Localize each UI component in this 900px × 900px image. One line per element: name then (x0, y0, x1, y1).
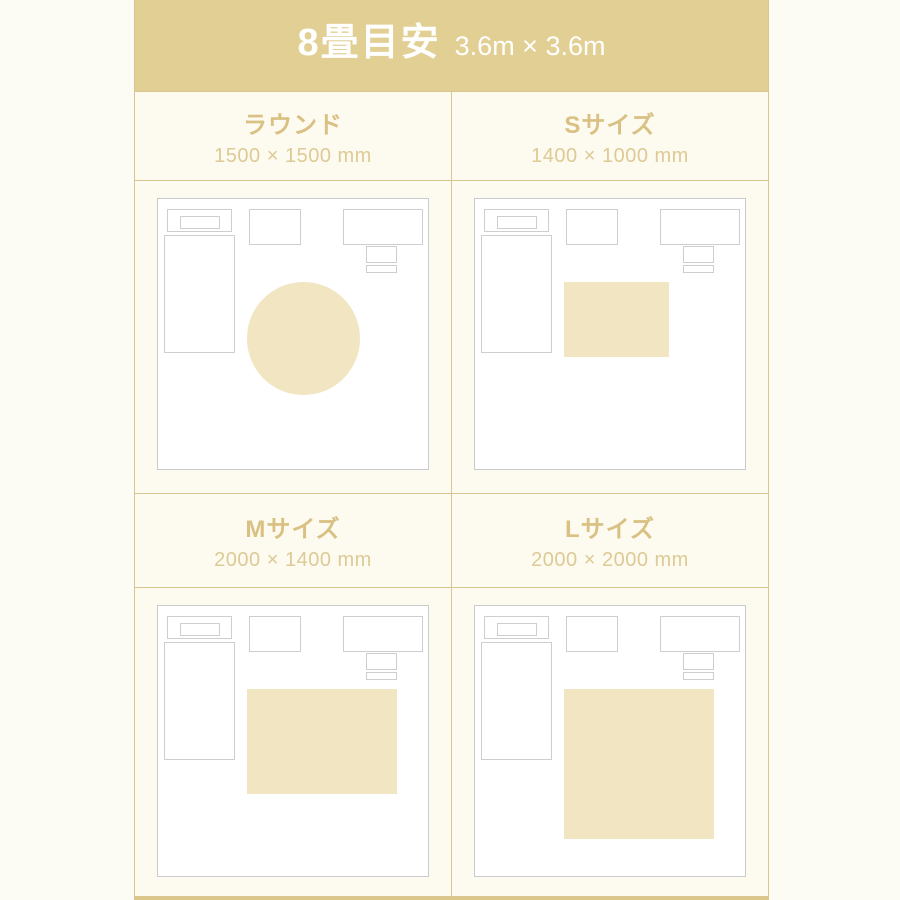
panel-dims-m-size: 2000 × 1400 mm (214, 549, 372, 572)
bed-pillow-outline (497, 216, 538, 229)
desk-outline (343, 616, 422, 652)
panel-title-l-size: Lサイズ (565, 509, 655, 544)
side-table-outline (566, 209, 617, 245)
rug-rect-2000x2000 (564, 689, 714, 839)
chair-back-outline (366, 653, 397, 670)
side-table-outline (249, 209, 300, 245)
bed-body-outline (481, 642, 552, 760)
rug-size-guide-table: 8畳目安 3.6m × 3.6m ラウンド 1500 × 1500 mm Sサイ… (134, 0, 769, 900)
room-diagram-round (157, 198, 429, 470)
room-cell-round (135, 181, 451, 493)
desk-outline (660, 209, 739, 245)
room-diagram-l-size (474, 605, 746, 877)
panel-dims-l-size: 2000 × 2000 mm (531, 549, 689, 572)
room-cell-l-size (452, 588, 768, 896)
panel-title-s-size: Sサイズ (564, 105, 655, 140)
panel-header-l-size: Lサイズ 2000 × 2000 mm (452, 494, 768, 587)
panel-header-round: ラウンド 1500 × 1500 mm (135, 92, 451, 180)
room-cell-m-size (135, 588, 451, 896)
chair-seat-outline (366, 672, 397, 680)
panel-dims-round: 1500 × 1500 mm (214, 145, 372, 168)
bed-body-outline (164, 642, 235, 760)
bed-pillow-outline (180, 216, 221, 229)
room-diagram-s-size (474, 198, 746, 470)
chair-back-outline (683, 246, 714, 263)
rug-rect-1400x1000 (564, 282, 669, 357)
chair-back-outline (366, 246, 397, 263)
bed-body-outline (481, 235, 552, 353)
rug-rect-2000x1400 (247, 689, 397, 794)
room-diagram-m-size (157, 605, 429, 877)
desk-outline (343, 209, 422, 245)
panel-dims-s-size: 1400 × 1000 mm (531, 145, 689, 168)
bed-body-outline (164, 235, 235, 353)
tatami-size-header: 8畳目安 3.6m × 3.6m (135, 0, 768, 91)
panel-title-round: ラウンド (243, 105, 343, 140)
side-table-outline (249, 616, 300, 652)
panel-header-s-size: Sサイズ 1400 × 1000 mm (452, 92, 768, 180)
room-cell-s-size (452, 181, 768, 493)
panel-title-m-size: Mサイズ (245, 509, 340, 544)
room-dimensions-label: 3.6m × 3.6m (455, 33, 606, 60)
tatami-size-title: 8畳目安 (298, 24, 441, 62)
desk-outline (660, 616, 739, 652)
chair-back-outline (683, 653, 714, 670)
chair-seat-outline (683, 672, 714, 680)
bed-pillow-outline (497, 623, 538, 636)
panel-header-m-size: Mサイズ 2000 × 1400 mm (135, 494, 451, 587)
chair-seat-outline (366, 265, 397, 273)
chair-seat-outline (683, 265, 714, 273)
side-table-outline (566, 616, 617, 652)
bed-pillow-outline (180, 623, 221, 636)
rug-circle-1500x1500 (247, 282, 360, 395)
